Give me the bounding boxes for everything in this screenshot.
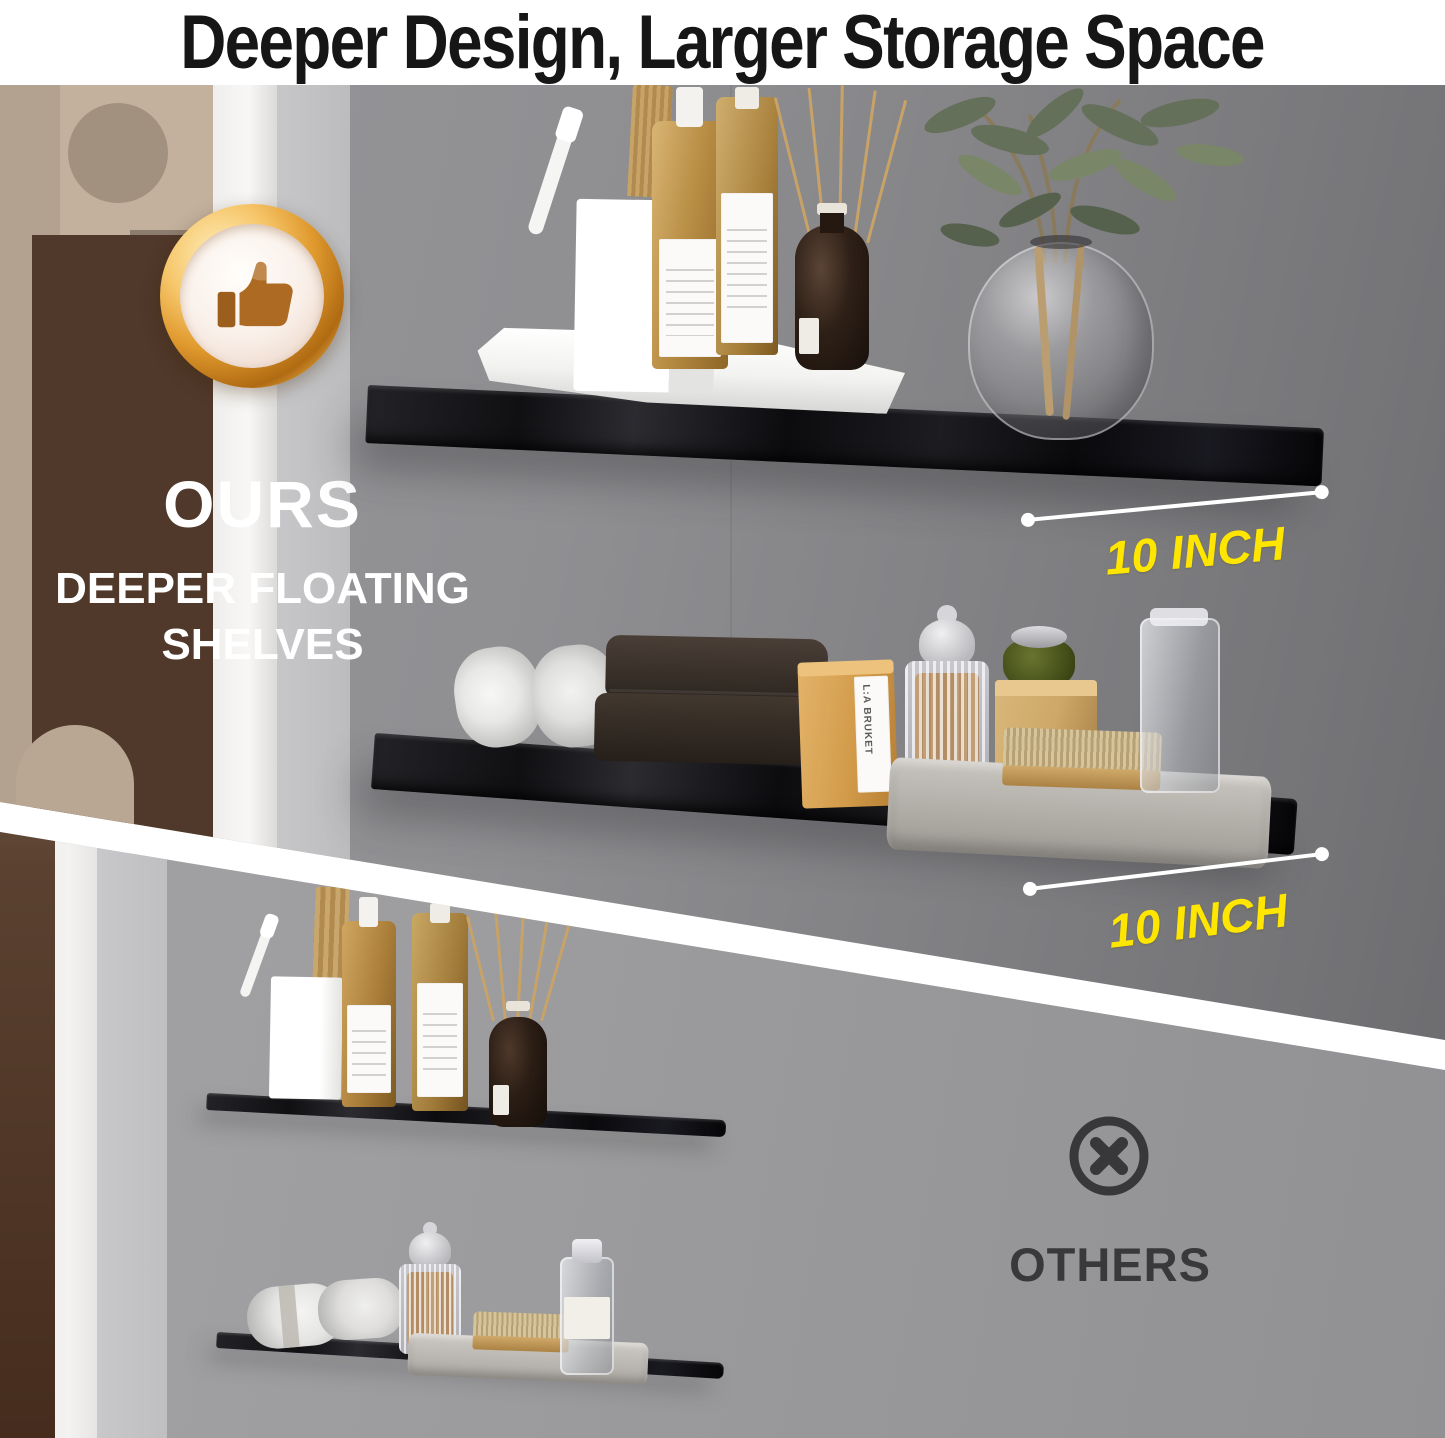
- rolled-towel: [316, 1276, 406, 1342]
- bottle-label: [417, 983, 463, 1097]
- folded-brown-towel-stack: [594, 635, 829, 770]
- soap-box-brand-text: L:A BRUKET: [860, 684, 873, 755]
- label-text-lines: [727, 220, 767, 316]
- jar-dome-lid: [919, 619, 975, 667]
- pump-cap: [359, 897, 378, 927]
- ours-subheading-line1: DEEPER FLOATING: [35, 567, 490, 611]
- x-circle-icon: [1066, 1113, 1152, 1199]
- box-top-flap: [797, 659, 893, 676]
- brush-handle: [472, 1335, 568, 1352]
- clear-glass-bottle: [560, 1257, 614, 1375]
- ours-heading: OURS: [35, 471, 490, 537]
- header-band: Deeper Design, Larger Storage Space: [0, 0, 1445, 85]
- wood-block-top: [995, 680, 1097, 696]
- ours-text-block: OURS DEEPER FLOATING SHELVES: [35, 471, 490, 667]
- ours-subheading-line2: SHELVES: [35, 623, 490, 667]
- bottle-label: [721, 193, 773, 343]
- jar-rim: [1150, 608, 1208, 626]
- page-title: Deeper Design, Larger Storage Space: [181, 0, 1265, 86]
- label-text-lines: [666, 260, 713, 336]
- kraft-soap-box: L:A BRUKET: [798, 665, 899, 808]
- amber-lotion-bottle: [716, 97, 778, 355]
- bottle-label: [659, 239, 721, 357]
- diffuser-neck: [820, 213, 844, 233]
- wooden-brush: [1002, 727, 1162, 790]
- amber-pump-bottle: [342, 921, 396, 1107]
- label-text-lines: [352, 1021, 385, 1077]
- amber-lotion-bottle: [412, 913, 468, 1111]
- others-heading: OTHERS: [985, 1237, 1235, 1292]
- medal-inner-disc: [180, 224, 324, 368]
- diffuser-label: [493, 1085, 509, 1115]
- toothbrush-holder: [269, 976, 343, 1099]
- diffuser-label: [799, 318, 819, 354]
- branch-in-vase: [1034, 246, 1054, 416]
- reed-diffuser-bottle: [489, 1017, 547, 1127]
- glass-lid: [1011, 626, 1067, 648]
- folded-towel: [594, 693, 827, 766]
- pump-cap: [676, 87, 703, 127]
- towel-strap: [278, 1285, 299, 1348]
- bottle-label: [347, 1005, 391, 1093]
- art-circle: [68, 103, 168, 203]
- branch-in-vase: [1062, 244, 1084, 420]
- label-text-lines: [423, 1004, 458, 1077]
- soap-box-label: L:A BRUKET: [854, 676, 892, 793]
- bottle-stopper: [572, 1239, 602, 1263]
- reed-diffuser-bottle: [795, 225, 869, 370]
- thumbs-up-medal-icon: [160, 204, 344, 388]
- jar-dome-lid: [409, 1232, 451, 1268]
- bottle-label-band: [564, 1297, 610, 1339]
- glass-vase: [968, 242, 1154, 440]
- product-comparison-photo: OURS DEEPER FLOATING SHELVES: [0, 85, 1445, 1438]
- thumbs-up-icon: [200, 244, 304, 348]
- bottle-cap: [735, 87, 759, 109]
- clear-glass-jar: [1140, 618, 1220, 793]
- wooden-brush: [472, 1311, 569, 1354]
- vase-mouth: [1030, 235, 1092, 249]
- bottle-cap: [430, 903, 450, 923]
- diffuser-neck-band: [506, 1001, 530, 1011]
